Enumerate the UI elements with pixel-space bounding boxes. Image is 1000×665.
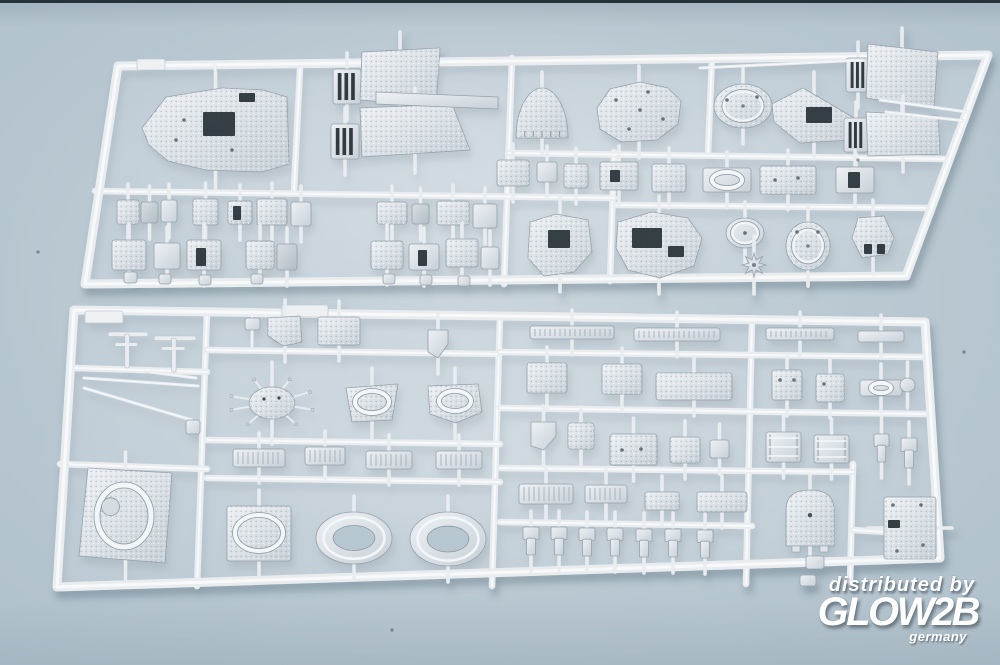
sprue-lower xyxy=(57,300,952,587)
dust-speck xyxy=(36,250,39,253)
product-photo: distributed by GLOW2B germany xyxy=(0,0,1000,665)
dust-speck xyxy=(856,158,859,161)
dust-speck xyxy=(962,350,965,353)
sprue-upper xyxy=(85,28,988,294)
photo-top-edge xyxy=(0,0,1000,3)
sprue-photo-canvas xyxy=(0,0,1000,665)
dust-speck xyxy=(390,628,393,631)
